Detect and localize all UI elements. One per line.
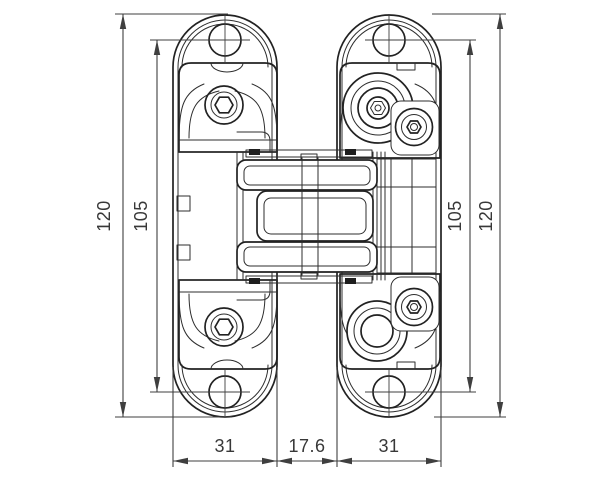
dim-label-right-outer: 120: [476, 200, 496, 232]
center-knuckle: [237, 149, 377, 284]
drawing-canvas: 120 105 105 120 31 17.6: [0, 0, 600, 480]
adjust-screw-bottom-right: [396, 289, 433, 326]
dim-label-bottom-right: 31: [378, 436, 399, 456]
adjust-screw-top-right: [396, 109, 433, 146]
dim-label-right-inner: 105: [445, 200, 465, 232]
hinge-technical-drawing: 120 105 105 120 31 17.6: [0, 0, 600, 480]
dim-label-bottom-center: 17.6: [288, 436, 325, 456]
dim-label-bottom-left: 31: [214, 436, 235, 456]
dim-label-left-inner: 105: [131, 200, 151, 232]
hex-screw-top-left: [205, 86, 243, 124]
dim-label-left-outer: 120: [94, 200, 114, 232]
hex-screw-bottom-left: [205, 308, 243, 346]
